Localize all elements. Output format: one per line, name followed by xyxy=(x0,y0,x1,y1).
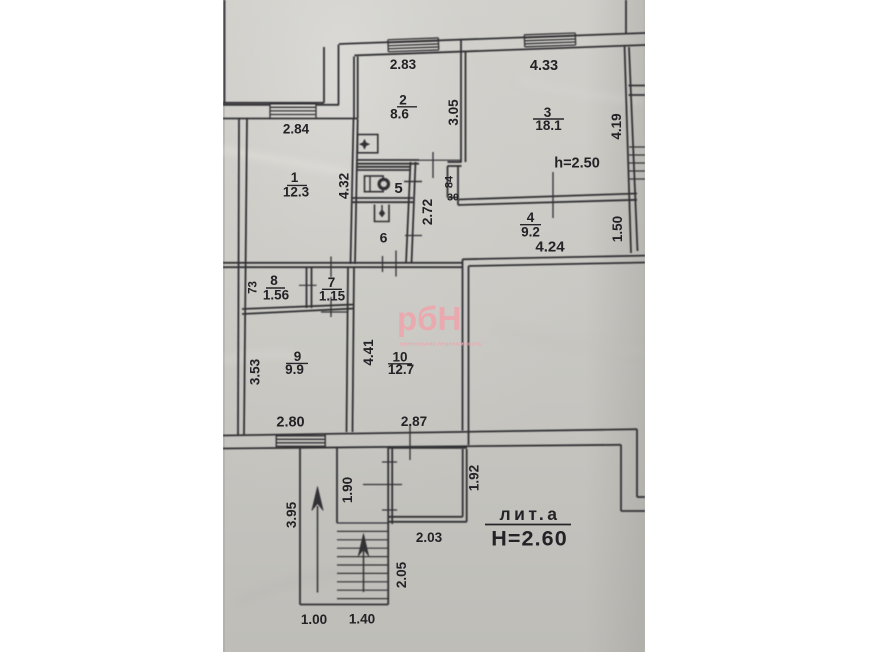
svg-text:1.40: 1.40 xyxy=(349,612,375,627)
svg-text:2.84: 2.84 xyxy=(283,122,310,137)
svg-text:h=2.50: h=2.50 xyxy=(554,156,600,172)
svg-text:3.05: 3.05 xyxy=(446,99,461,126)
svg-text:1: 1 xyxy=(291,170,299,185)
svg-text:2.83: 2.83 xyxy=(390,57,417,72)
svg-text:4.32: 4.32 xyxy=(337,173,352,199)
svg-text:73: 73 xyxy=(248,281,260,294)
svg-text:1.50: 1.50 xyxy=(610,216,625,242)
svg-text:5: 5 xyxy=(394,180,402,197)
svg-text:1.90: 1.90 xyxy=(340,477,355,503)
svg-text:4: 4 xyxy=(527,210,535,225)
svg-text:1.00: 1.00 xyxy=(301,612,327,627)
svg-text:лит.а: лит.а xyxy=(499,504,560,524)
svg-text:2.05: 2.05 xyxy=(394,561,409,588)
svg-text:4.33: 4.33 xyxy=(530,58,558,74)
svg-text:84: 84 xyxy=(444,175,456,188)
svg-text:8.6: 8.6 xyxy=(390,107,409,122)
svg-text:2.03: 2.03 xyxy=(416,530,443,545)
svg-text:2: 2 xyxy=(399,93,407,108)
svg-text:2.80: 2.80 xyxy=(276,415,304,431)
svg-text:4.19: 4.19 xyxy=(609,113,624,139)
svg-text:6: 6 xyxy=(380,230,388,246)
svg-text:4.24: 4.24 xyxy=(535,239,565,256)
svg-text:2.87: 2.87 xyxy=(401,414,427,429)
svg-text:30: 30 xyxy=(447,192,459,204)
svg-text:1.15: 1.15 xyxy=(319,289,346,304)
svg-text:8: 8 xyxy=(270,273,278,288)
svg-text:2.72: 2.72 xyxy=(420,199,435,225)
svg-text:Н=2.60: Н=2.60 xyxy=(491,527,568,551)
svg-text:3.53: 3.53 xyxy=(248,358,263,385)
svg-text:18.1: 18.1 xyxy=(535,118,562,133)
svg-text:12.3: 12.3 xyxy=(283,185,310,200)
svg-text:1.56: 1.56 xyxy=(263,288,290,303)
svg-text:4.41: 4.41 xyxy=(361,339,376,366)
svg-text:рбН: рбН xyxy=(397,300,461,337)
svg-text:правильная недвижимость: правильная недвижимость xyxy=(400,342,482,348)
svg-text:3.95: 3.95 xyxy=(284,501,299,528)
svg-text:9.9: 9.9 xyxy=(285,362,304,377)
svg-text:9.2: 9.2 xyxy=(521,225,540,240)
svg-text:1.92: 1.92 xyxy=(467,465,482,491)
